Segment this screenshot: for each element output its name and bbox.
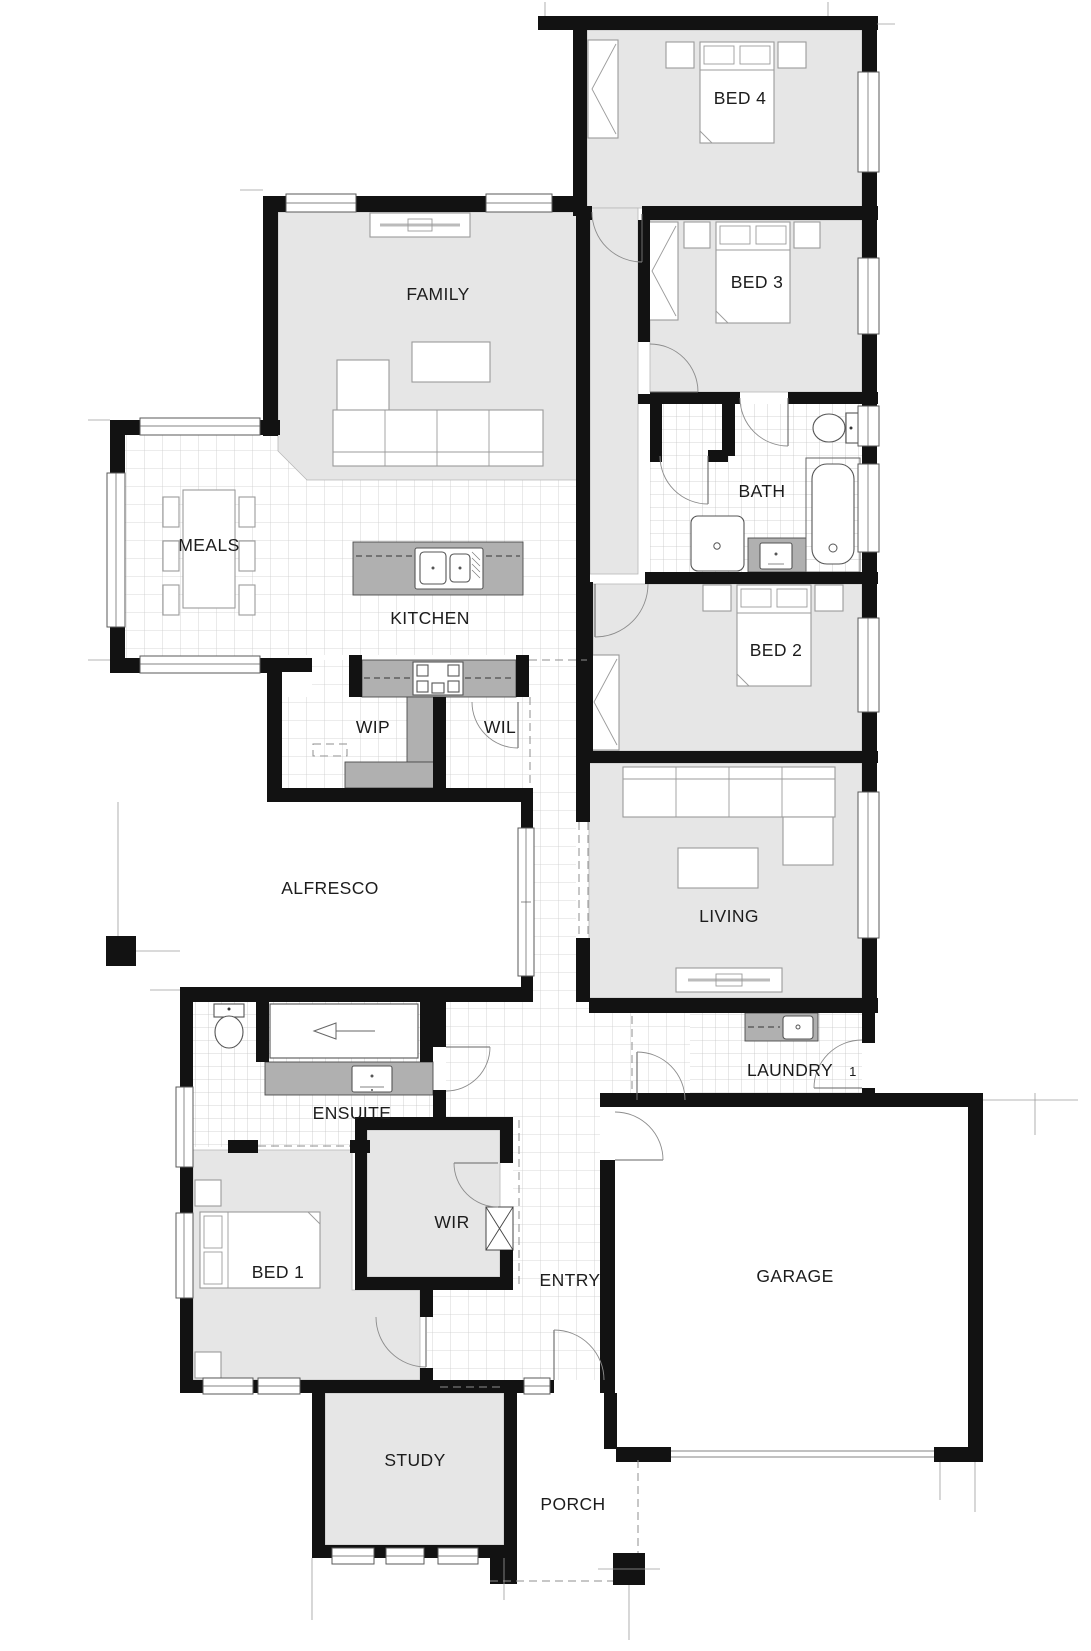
linen-cupboard-icon xyxy=(486,1207,513,1250)
floor-plan-page: BED 4BED 3BATHBED 2FAMILYMEALSKITCHENWIP… xyxy=(0,0,1091,1651)
alfresco-sliding-door xyxy=(518,828,534,976)
room-label-garage: GARAGE xyxy=(756,1266,833,1286)
entry-tiles xyxy=(513,1117,600,1290)
room-label-kitchen: KITCHEN xyxy=(390,608,470,628)
bed1-window-bottom-2 xyxy=(258,1378,300,1394)
entry-upper-tiles xyxy=(446,1002,600,1117)
room-label-bed1: BED 1 xyxy=(252,1262,305,1282)
room-label-porch: PORCH xyxy=(540,1494,605,1514)
entry-lower-tiles xyxy=(427,1290,600,1380)
cooktop-icon xyxy=(413,662,463,695)
garage-door xyxy=(671,1451,934,1457)
living-window xyxy=(858,792,879,938)
bed4-window xyxy=(858,72,879,172)
bed2-window xyxy=(858,618,879,712)
bed1-window-left xyxy=(176,1213,193,1298)
room-label-wip: WIP xyxy=(356,717,390,737)
meals-window-left xyxy=(107,473,125,627)
bath-shower-icon xyxy=(691,516,744,571)
door-number-1: 1 xyxy=(849,1064,857,1079)
ensuite-toilet-icon xyxy=(214,1004,244,1048)
room-label-study: STUDY xyxy=(384,1450,445,1470)
room-label-wir: WIR xyxy=(434,1212,469,1232)
bed1-window-bottom-1 xyxy=(203,1378,253,1394)
ensuite-sink-icon xyxy=(352,1066,392,1092)
laundry-sink-icon xyxy=(783,1016,813,1039)
bed-hall-carpet xyxy=(590,208,638,574)
floor-plan-svg: BED 4BED 3BATHBED 2FAMILYMEALSKITCHENWIP… xyxy=(0,0,1091,1651)
ensuite-shower-icon xyxy=(270,1004,418,1058)
wip-bench-vert xyxy=(407,697,435,762)
room-label-ensuite: ENSUITE xyxy=(313,1103,392,1123)
wc-toilet-icon xyxy=(813,413,859,443)
garage-internal-door xyxy=(615,1112,663,1160)
study-window-3 xyxy=(438,1548,478,1564)
study-window-1 xyxy=(332,1548,374,1564)
family-window-left xyxy=(286,194,356,212)
entry-sidelight xyxy=(524,1378,550,1394)
room-label-alfresco: ALFRESCO xyxy=(281,878,379,898)
family-window-right xyxy=(486,194,552,212)
room-label-meals: MEALS xyxy=(178,535,239,555)
room-label-living: LIVING xyxy=(699,906,759,926)
meals-window-top xyxy=(140,418,260,435)
meals-window-bottom xyxy=(140,656,260,673)
bath-sink-icon xyxy=(760,543,792,569)
room-label-bath: BATH xyxy=(739,481,786,501)
room-label-laundry: LAUNDRY xyxy=(747,1060,833,1080)
wip-bench-horiz xyxy=(345,762,435,788)
bed2-robe-icon xyxy=(591,655,619,750)
wc-window xyxy=(858,406,879,446)
room-label-entry: ENTRY xyxy=(540,1270,601,1290)
room-label-bed4: BED 4 xyxy=(714,88,767,108)
bed3-window xyxy=(858,258,879,334)
room-label-family: FAMILY xyxy=(406,284,469,304)
kitchen-sink-icon xyxy=(415,548,483,589)
room-label-bed3: BED 3 xyxy=(731,272,784,292)
wip-doorway-tiles xyxy=(312,660,349,697)
ensuite-vanity xyxy=(265,1062,433,1095)
bathtub-icon xyxy=(806,458,860,572)
room-label-bed2: BED 2 xyxy=(750,640,803,660)
room-label-wil: WIL xyxy=(484,717,516,737)
bath-window xyxy=(858,464,879,552)
study-window-2 xyxy=(386,1548,424,1564)
ensuite-window xyxy=(176,1087,193,1167)
